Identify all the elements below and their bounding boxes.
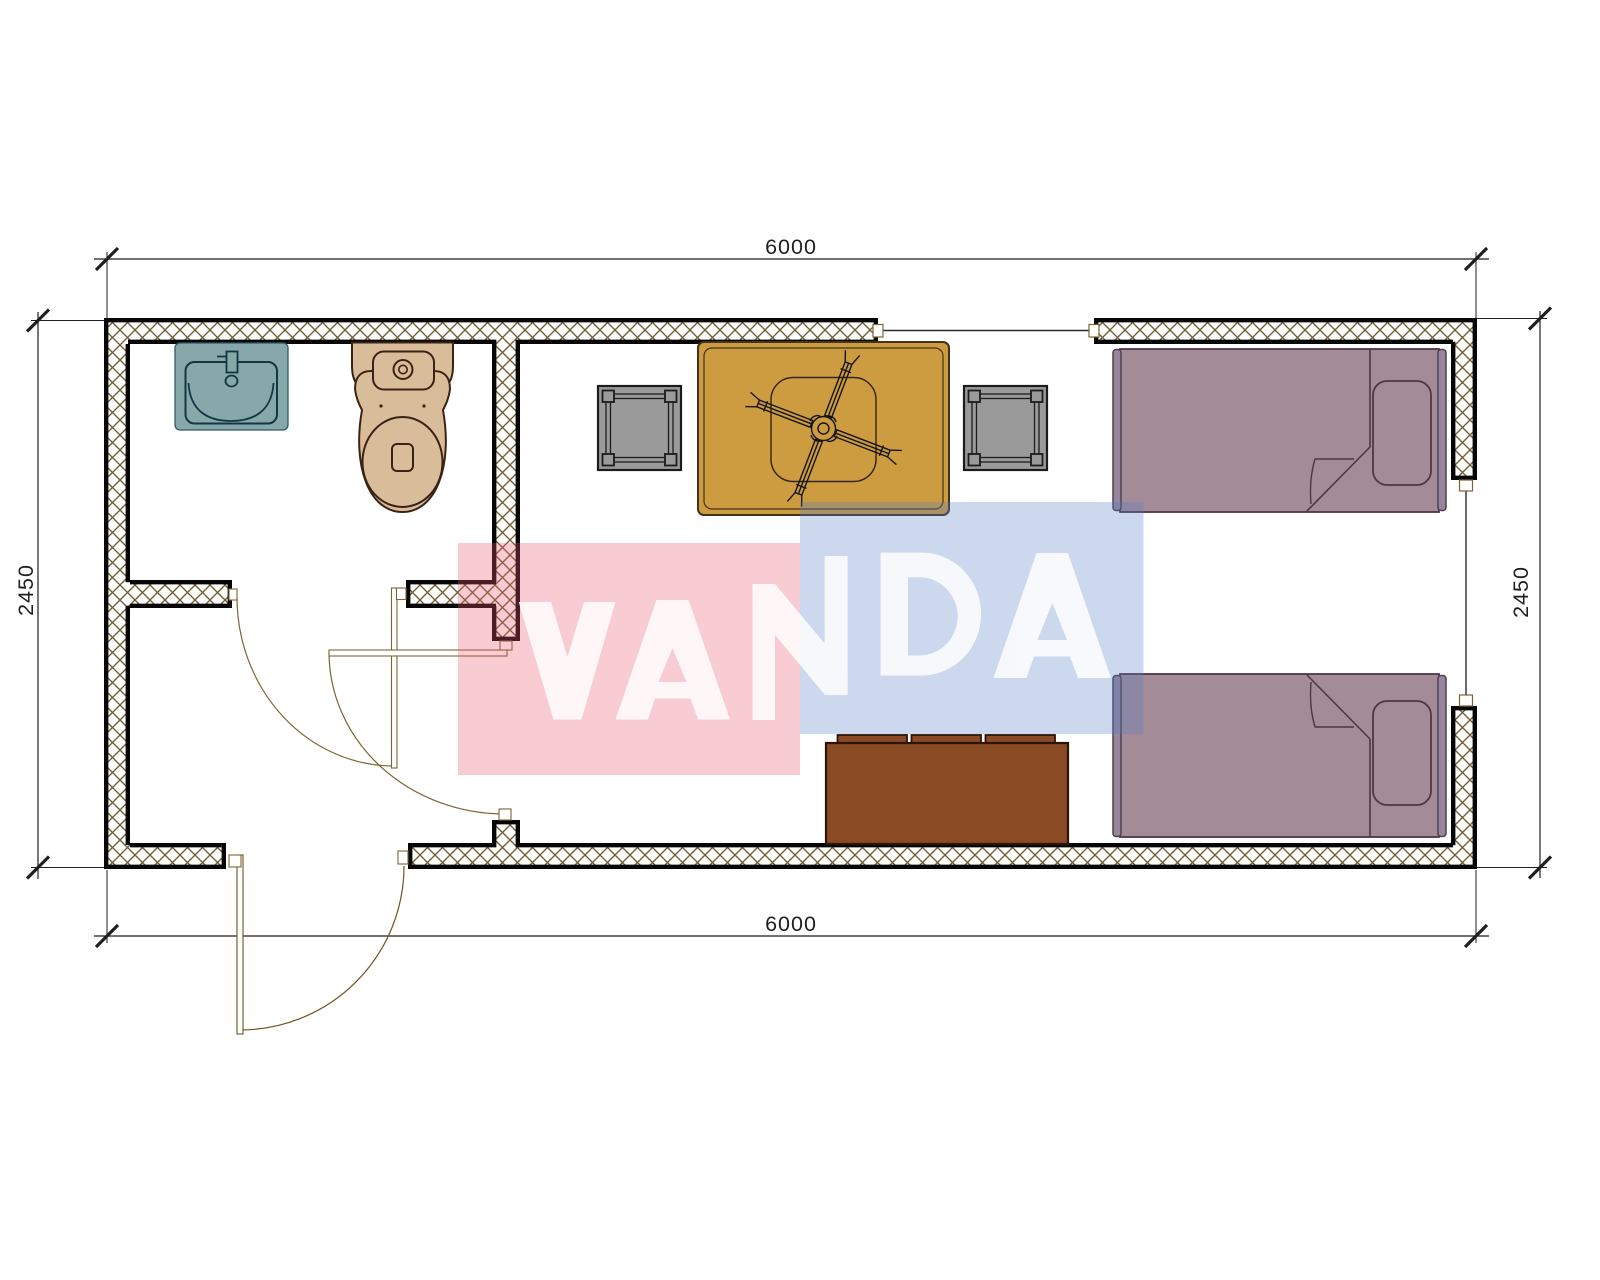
svg-text:6000: 6000 — [765, 912, 817, 936]
svg-text:2450: 2450 — [14, 564, 38, 616]
svg-text:6000: 6000 — [765, 235, 817, 259]
svg-text:2450: 2450 — [1509, 566, 1533, 618]
